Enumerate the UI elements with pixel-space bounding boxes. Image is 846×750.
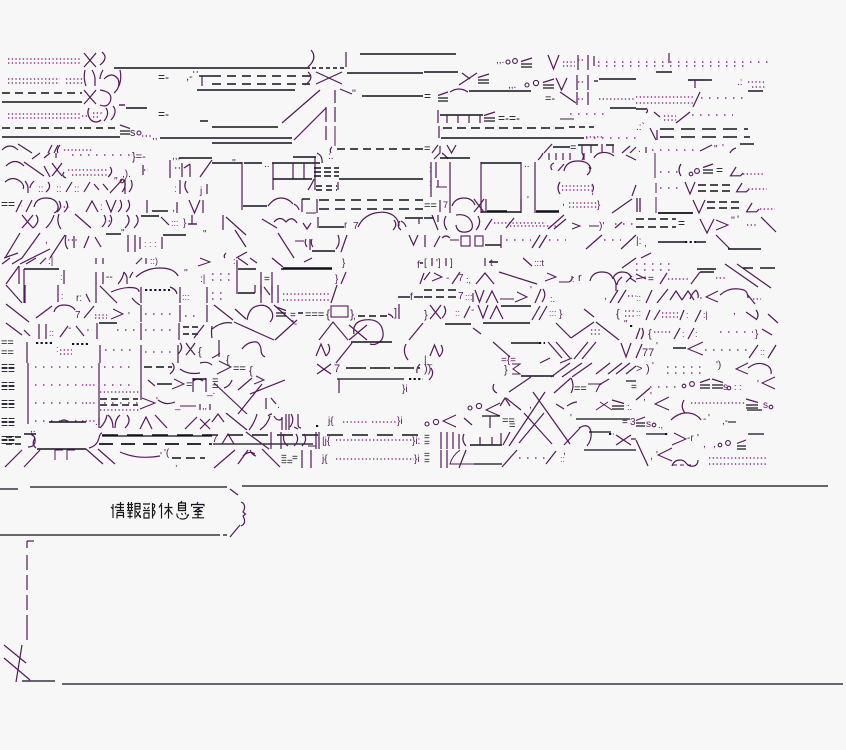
svg-text::.: :. bbox=[550, 294, 555, 304]
svg-text:: : :: : : : bbox=[144, 239, 157, 249]
svg-text:': ' bbox=[527, 195, 529, 206]
svg-text:=: = bbox=[186, 379, 192, 391]
svg-text:': ' bbox=[700, 296, 702, 307]
svg-text:]: ] bbox=[450, 258, 453, 269]
svg-text:=: = bbox=[648, 274, 654, 285]
svg-text:=: = bbox=[716, 163, 723, 177]
svg-text:|j{: |j{ bbox=[322, 436, 331, 447]
svg-text:j: j bbox=[199, 186, 202, 197]
svg-text:'': '' bbox=[184, 268, 188, 279]
svg-text:>: > bbox=[636, 363, 642, 375]
svg-text:': ' bbox=[737, 214, 739, 226]
svg-text:=: = bbox=[264, 274, 270, 285]
svg-text:::: :: bbox=[56, 184, 62, 195]
svg-text:=: = bbox=[424, 438, 430, 449]
svg-text:': ' bbox=[570, 413, 572, 424]
svg-text:': ' bbox=[128, 311, 130, 322]
svg-text:=: = bbox=[292, 453, 298, 464]
svg-text:::: :: bbox=[74, 184, 80, 195]
svg-text:=: = bbox=[424, 456, 430, 467]
svg-text::: : bbox=[686, 310, 689, 320]
svg-text:'): ') bbox=[716, 360, 721, 371]
svg-text:}: } bbox=[504, 364, 508, 376]
svg-text:.:: .: bbox=[737, 77, 743, 88]
svg-text:7: 7 bbox=[212, 433, 218, 445]
svg-text:===: === bbox=[305, 309, 324, 321]
svg-text:::): ::) bbox=[150, 256, 158, 266]
svg-text:j{: j{ bbox=[321, 454, 328, 465]
svg-text:.:`: .:` bbox=[636, 121, 645, 133]
svg-text:': ' bbox=[656, 450, 658, 461]
svg-text:,: , bbox=[172, 203, 175, 214]
svg-text:=-: =- bbox=[545, 93, 555, 105]
svg-text:{: { bbox=[326, 307, 330, 321]
svg-text:77: 77 bbox=[642, 347, 654, 359]
svg-text:'': '' bbox=[232, 158, 236, 169]
svg-text:,: , bbox=[604, 291, 607, 302]
svg-text:,: , bbox=[353, 311, 356, 322]
svg-text:==: == bbox=[1, 381, 15, 395]
svg-text::: : bbox=[682, 329, 685, 339]
svg-text:::: :: bbox=[38, 184, 44, 195]
svg-text:,: , bbox=[529, 400, 532, 411]
svg-text:f: f bbox=[410, 292, 413, 303]
svg-text:==: == bbox=[1, 399, 15, 413]
svg-text:7: 7 bbox=[443, 200, 448, 210]
svg-text:[: [ bbox=[424, 258, 427, 269]
svg-text:-: - bbox=[703, 414, 706, 425]
svg-text:7: 7 bbox=[458, 273, 464, 284]
svg-text:=: = bbox=[678, 216, 685, 230]
svg-text:_: _ bbox=[174, 400, 181, 411]
svg-text:,,.: ,,. bbox=[508, 80, 516, 91]
svg-text:..: .. bbox=[524, 159, 530, 170]
svg-text:=: = bbox=[570, 142, 576, 154]
svg-text:==: == bbox=[1, 197, 15, 211]
svg-text:-r: -r bbox=[687, 433, 694, 444]
svg-text:r: r bbox=[578, 272, 582, 284]
svg-text:': ' bbox=[652, 361, 654, 372]
svg-text:": " bbox=[731, 215, 735, 227]
svg-text:): ) bbox=[646, 363, 650, 375]
svg-text:}i:: }i: bbox=[412, 436, 420, 447]
svg-text:']: '] bbox=[436, 258, 441, 269]
svg-text:': ' bbox=[650, 391, 652, 402]
svg-text:==: == bbox=[1, 417, 15, 431]
svg-text::|: :| bbox=[200, 274, 205, 285]
svg-text:{: { bbox=[198, 346, 202, 358]
svg-text:,: , bbox=[733, 306, 736, 317]
svg-text:,: , bbox=[175, 458, 178, 468]
svg-text:: :: : : bbox=[734, 382, 742, 392]
svg-text:': ' bbox=[530, 285, 532, 296]
svg-text:=: = bbox=[424, 89, 431, 103]
svg-text:-: - bbox=[446, 273, 449, 284]
svg-text:": " bbox=[121, 228, 125, 239]
svg-text::: : bbox=[695, 329, 698, 339]
svg-text:.,: ., bbox=[658, 420, 663, 430]
svg-text:,-: ,- bbox=[186, 71, 193, 83]
svg-text:s: s bbox=[646, 419, 651, 430]
svg-text:=: = bbox=[631, 382, 637, 393]
svg-text:": " bbox=[352, 88, 356, 100]
svg-text:)): )) bbox=[424, 363, 431, 375]
svg-text:': ' bbox=[757, 379, 759, 390]
svg-text:,,,: ,,, bbox=[172, 151, 180, 162]
svg-text:==: == bbox=[424, 200, 437, 212]
svg-text::: : bbox=[429, 164, 432, 174]
svg-text:|:: |: bbox=[636, 236, 641, 247]
svg-text:=: = bbox=[622, 417, 628, 428]
svg-text:s: s bbox=[763, 400, 768, 411]
svg-text:==: == bbox=[574, 383, 587, 395]
svg-text:,: , bbox=[713, 439, 716, 450]
svg-text:": " bbox=[624, 319, 628, 330]
svg-text:==: == bbox=[1, 363, 15, 377]
svg-text::.: :. bbox=[328, 151, 334, 162]
svg-text::: : bbox=[429, 178, 432, 188]
svg-text:==: == bbox=[233, 363, 246, 375]
svg-text::: : bbox=[233, 256, 236, 266]
svg-text:,: , bbox=[703, 439, 706, 450]
svg-text:7: 7 bbox=[75, 310, 81, 321]
svg-text:}=-: }=- bbox=[132, 151, 146, 163]
svg-text:::: :: bbox=[49, 328, 54, 338]
svg-text:.: . bbox=[638, 144, 641, 155]
svg-text::,: :, bbox=[466, 275, 471, 285]
svg-text:': ' bbox=[656, 341, 658, 352]
svg-text:--: -- bbox=[106, 272, 113, 283]
svg-text:f: f bbox=[417, 260, 420, 271]
svg-text:=-: =- bbox=[158, 107, 169, 121]
svg-text:::: :: bbox=[636, 293, 641, 303]
svg-text:-: - bbox=[68, 323, 71, 334]
svg-text:,: , bbox=[562, 197, 565, 208]
svg-text:3: 3 bbox=[630, 417, 636, 428]
svg-text:{: { bbox=[648, 328, 652, 340]
svg-text:7: 7 bbox=[334, 363, 340, 375]
svg-text:}i: }i bbox=[397, 416, 403, 427]
svg-text:,: , bbox=[650, 451, 653, 462]
svg-text::.: :. bbox=[627, 402, 632, 412]
svg-text:==: == bbox=[1, 347, 14, 359]
svg-text:'-: '- bbox=[292, 319, 297, 330]
svg-text:'(: '( bbox=[164, 448, 170, 459]
svg-text::::: ::: bbox=[465, 292, 473, 302]
svg-text::|: :| bbox=[48, 256, 53, 267]
svg-text:,: , bbox=[644, 238, 647, 249]
svg-text:=: = bbox=[424, 143, 430, 155]
svg-text::: : bbox=[60, 272, 63, 282]
svg-text:,).: ,). bbox=[122, 169, 131, 180]
svg-text::|: :| bbox=[703, 310, 708, 320]
svg-text:": " bbox=[714, 144, 718, 155]
svg-text::::t: :::t bbox=[534, 258, 545, 268]
svg-text::::: ::: bbox=[171, 218, 179, 228]
svg-text:::: :: bbox=[636, 308, 641, 318]
svg-text:7: 7 bbox=[458, 291, 464, 302]
svg-text:{: { bbox=[249, 365, 253, 377]
svg-text:,,: ,, bbox=[152, 131, 158, 142]
svg-text::: : bbox=[572, 274, 575, 284]
svg-text:": " bbox=[203, 229, 207, 240]
svg-text:,,.: ,,. bbox=[496, 55, 504, 66]
svg-text::::: ::: bbox=[549, 308, 557, 318]
svg-text:': ' bbox=[156, 396, 158, 407]
svg-text:': ' bbox=[708, 413, 710, 424]
svg-text:r:: r: bbox=[76, 293, 82, 304]
svg-text:': ' bbox=[722, 143, 724, 154]
svg-text:,,: ,, bbox=[202, 401, 207, 411]
svg-text:.: . bbox=[277, 400, 280, 411]
svg-text:': ' bbox=[697, 433, 699, 444]
svg-text:{: { bbox=[226, 354, 230, 366]
svg-text:)': )' bbox=[599, 221, 604, 232]
svg-text:=: = bbox=[509, 420, 515, 432]
svg-text:]: ] bbox=[394, 307, 397, 319]
svg-text:}i: }i bbox=[402, 384, 408, 395]
svg-text::: : bbox=[61, 291, 64, 301]
svg-text::::: ::: bbox=[182, 292, 190, 302]
svg-text:=-: =- bbox=[158, 70, 169, 84]
svg-text:-: - bbox=[471, 305, 474, 316]
svg-text:': ' bbox=[160, 451, 162, 462]
svg-text:j{: j{ bbox=[327, 416, 334, 427]
svg-text:..: .. bbox=[264, 159, 270, 170]
svg-text:`: ` bbox=[176, 273, 179, 285]
svg-text:t: t bbox=[490, 258, 493, 269]
svg-text::: : bbox=[100, 202, 103, 213]
svg-text:': ' bbox=[87, 328, 89, 339]
svg-text:::: :: bbox=[455, 308, 460, 318]
svg-text:″: ″ bbox=[114, 176, 118, 187]
svg-text::: : bbox=[174, 184, 177, 195]
svg-text:,-: ,- bbox=[722, 416, 728, 427]
svg-text:,: , bbox=[591, 186, 594, 197]
svg-text:}: } bbox=[424, 309, 428, 321]
svg-text:s: s bbox=[130, 127, 136, 139]
svg-text:,: , bbox=[643, 392, 646, 403]
svg-text::: : bbox=[56, 344, 59, 354]
svg-text:,: , bbox=[563, 446, 566, 457]
svg-text:}i: }i bbox=[414, 454, 420, 465]
svg-text:=-=-: =-=- bbox=[498, 111, 520, 125]
svg-text:::: :: bbox=[760, 347, 765, 357]
svg-text:{: { bbox=[616, 308, 620, 320]
svg-text:,: , bbox=[45, 235, 48, 246]
svg-text:.: . bbox=[95, 417, 98, 428]
